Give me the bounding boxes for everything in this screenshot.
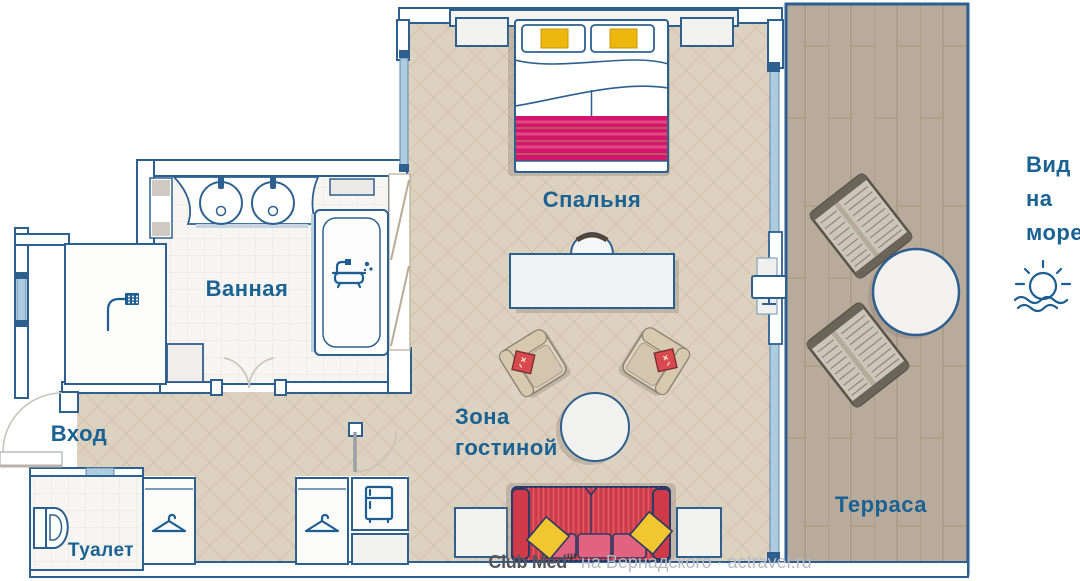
side-table-left (455, 508, 507, 557)
shower-cabin (65, 244, 166, 384)
tv-icon (752, 276, 786, 298)
sofa (512, 487, 672, 561)
entrance-door-leaf (0, 452, 62, 466)
pillow-accent (541, 29, 568, 48)
terrace: Терраса (786, 4, 968, 574)
sea-view-line3: море (1026, 220, 1080, 245)
shelf-cabinet (352, 534, 408, 564)
desk (510, 254, 674, 308)
sea-view-line1: Вид (1026, 152, 1071, 177)
floor-plan: Терраса (0, 0, 1080, 581)
trident-icon: Ψ (567, 552, 576, 564)
terrace-table (873, 249, 959, 335)
bathtub (311, 210, 388, 355)
double-bed (515, 20, 668, 172)
sea-view-annotation: Вид на море (1015, 152, 1080, 311)
folding-partition (389, 174, 410, 350)
bed-blanket (515, 116, 668, 162)
faucet-icon (218, 176, 224, 189)
bath-door-post-left (211, 380, 222, 395)
bathroom-north-wall (137, 160, 407, 176)
entrance-post (60, 392, 78, 412)
living-label-line1: Зона (455, 404, 510, 429)
toilet-icon (34, 508, 68, 548)
bath-stool (167, 344, 203, 382)
shower-window (17, 278, 26, 322)
sofa-armrest (512, 489, 529, 559)
watermark-brand: Club Med (488, 552, 567, 572)
bathroom-label: Ванная (206, 276, 289, 301)
pillow-accent (610, 29, 637, 48)
bedroom-label: Спальня (543, 187, 642, 212)
terrace-label: Терраса (835, 492, 927, 517)
floor-plan-page: Терраса (0, 0, 1080, 581)
shower-north-connector (15, 234, 69, 245)
faucet-icon (270, 176, 276, 189)
watermark: Club MedΨ на Вернадского · actravel.ru (440, 552, 860, 573)
entrance-label: Вход (51, 421, 107, 446)
bedroom-west-window (400, 58, 408, 168)
hall-floor (195, 476, 296, 564)
east-post (768, 20, 783, 68)
nightstand-left (456, 18, 508, 46)
bath-door-post-right (275, 380, 286, 395)
bathroom-south-wall-left (160, 382, 218, 393)
toilet-label: Туалет (68, 540, 134, 561)
sea-view-line2: на (1026, 186, 1053, 211)
coffee-table (561, 393, 629, 461)
bed-footboard (515, 161, 668, 172)
sun-over-sea-icon (1015, 261, 1070, 311)
side-table-right (677, 508, 721, 557)
living-label-line2: гостиной (455, 435, 558, 460)
toilet-room: Туалет (30, 476, 143, 570)
nightstand-right (681, 18, 733, 46)
watermark-text: на Вернадского · actravel.ru (581, 552, 812, 572)
fridge-icon (366, 487, 392, 522)
wall-cabinet (330, 179, 374, 195)
partition-south-wall (388, 348, 411, 393)
